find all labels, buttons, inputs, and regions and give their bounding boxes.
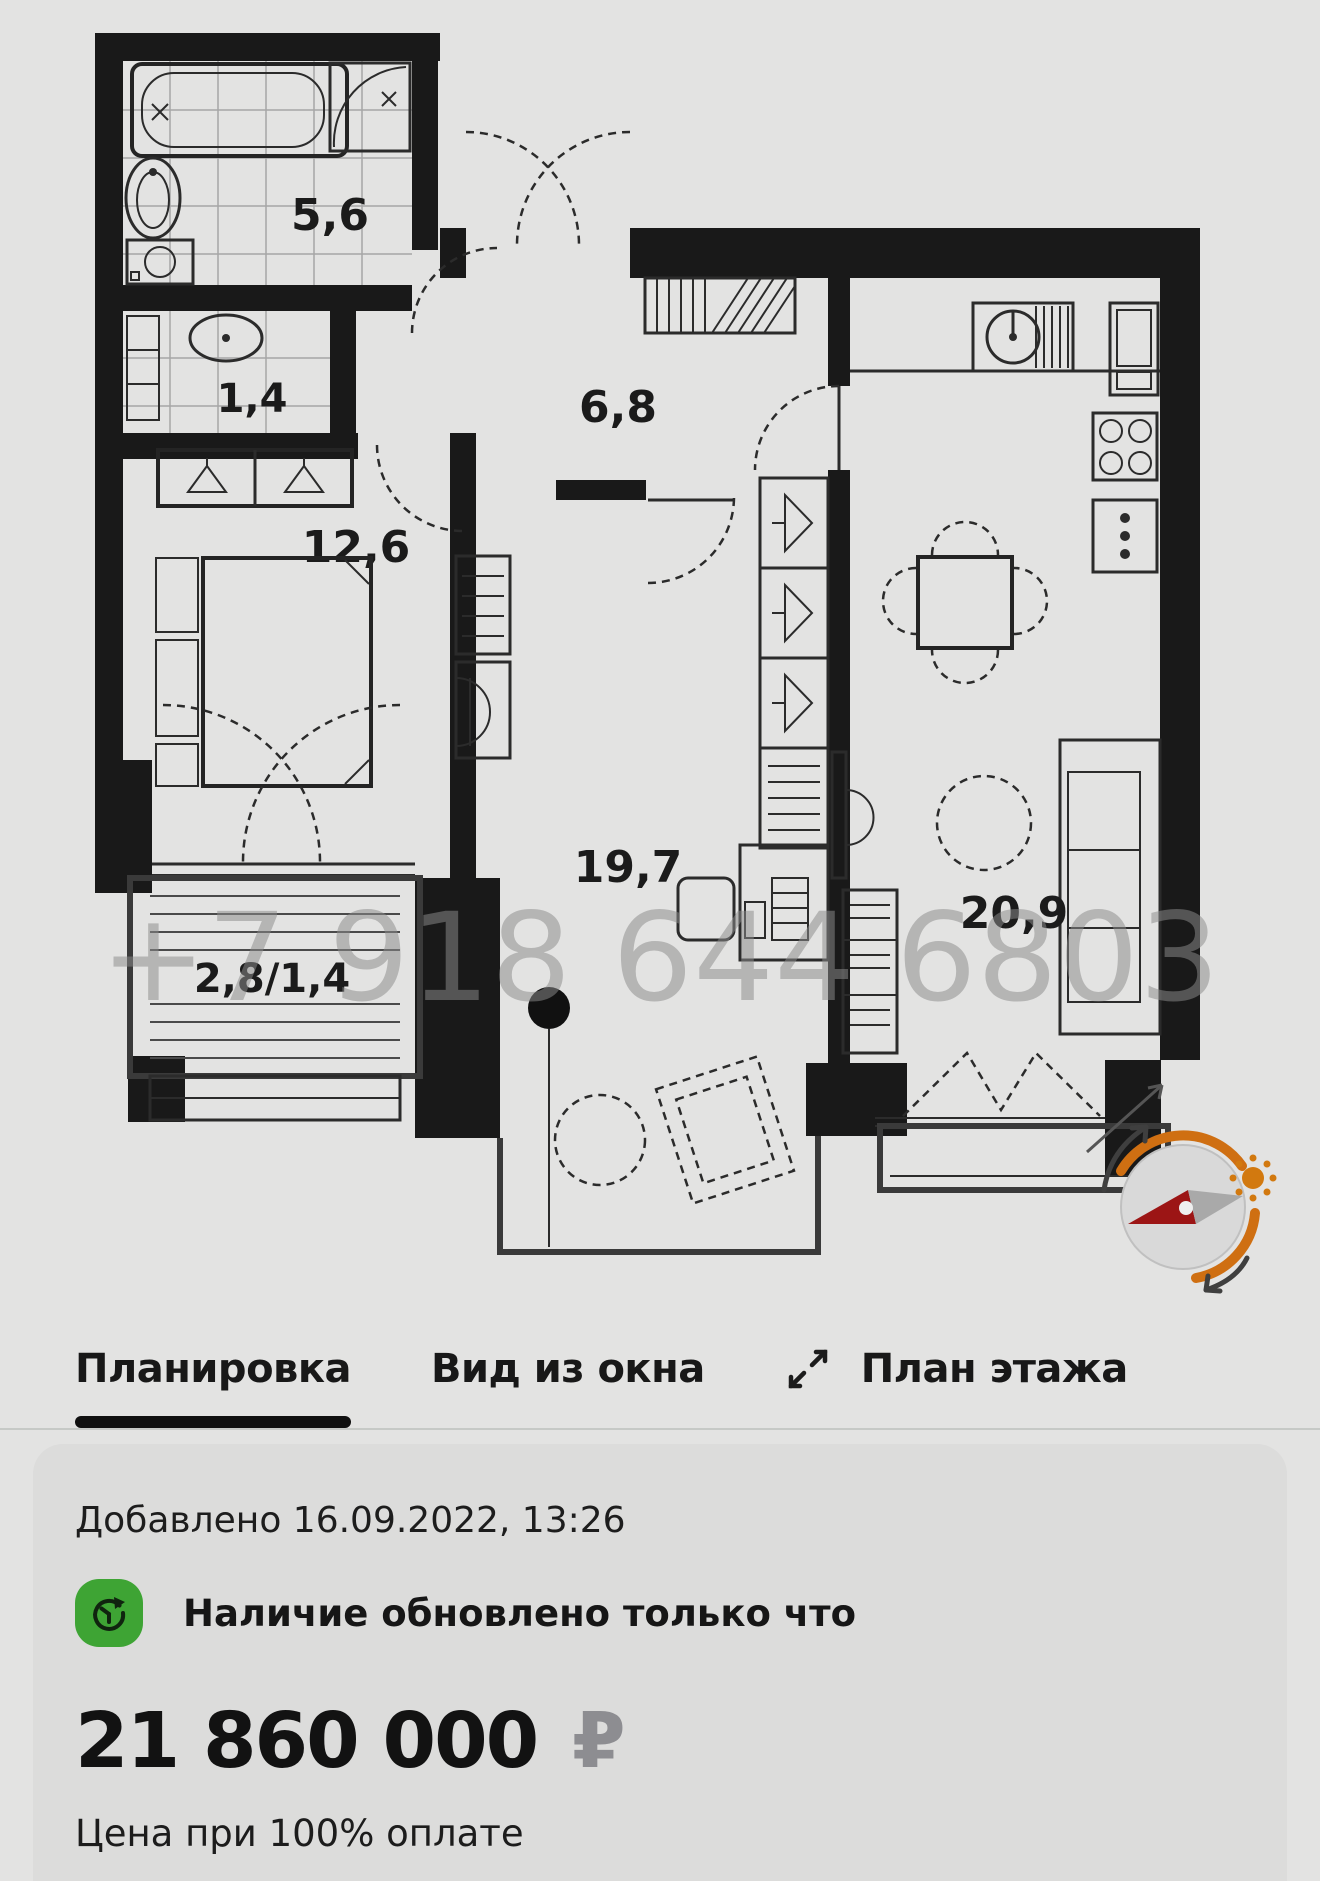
dining-table — [883, 522, 1047, 683]
closet-column — [760, 478, 828, 848]
kitchen-counter — [850, 303, 1160, 371]
bed — [156, 558, 371, 786]
bathroom-tiles — [123, 61, 412, 285]
tab-planirovka-label: Планировка — [75, 1346, 351, 1392]
hallway: 6,8 — [412, 132, 839, 470]
room-door-arc — [648, 497, 734, 583]
toilet-cabinet — [127, 316, 159, 420]
coffee-table — [937, 776, 1031, 870]
media-tabbar: Планировка Вид из окна План этажа — [0, 1310, 1320, 1430]
toilet-room: 1,4 — [123, 311, 330, 433]
currency-symbol: ₽ — [572, 1697, 624, 1786]
availability-badge — [75, 1579, 143, 1647]
kitchen-cabinet — [1093, 500, 1157, 572]
washing-machine — [127, 240, 193, 284]
price-row: 21 860 000 ₽ — [75, 1697, 1245, 1786]
tab-vid-iz-okna[interactable]: Вид из окна — [431, 1310, 705, 1428]
room-label-toilet: 1,4 — [217, 376, 288, 422]
shaft — [645, 278, 795, 333]
availability-row: Наличие обновлено только что — [75, 1579, 1245, 1647]
added-date: Добавлено 16.09.2022, 13:26 — [75, 1500, 1245, 1541]
floor-plan-viewer[interactable]: 5,6 1,4 6,8 — [0, 0, 1320, 1310]
room-label-bedroom: 12,6 — [302, 522, 411, 573]
entrance-door-arc — [466, 132, 579, 245]
tab-plan-etazha-label: План этажа — [861, 1346, 1128, 1392]
watermark-phone: +7 918 644 6803 — [100, 887, 1220, 1029]
room-label-hallway: 6,8 — [579, 382, 657, 433]
room-label-bathroom: 5,6 — [291, 190, 369, 241]
bay-window — [500, 1057, 818, 1252]
floor-plan-image: 5,6 1,4 6,8 — [0, 0, 1320, 1310]
armchair — [555, 1095, 645, 1185]
fridge — [1110, 303, 1158, 395]
toilet-sink — [190, 315, 262, 361]
price-value: 21 860 000 — [75, 1697, 537, 1786]
bathroom: 5,6 — [123, 61, 412, 285]
expand-arrows-icon — [785, 1346, 831, 1392]
kitchen-door-arc — [755, 386, 839, 470]
living-french-window — [875, 1053, 1105, 1126]
listing-info-card: Добавлено 16.09.2022, 13:26 Наличие обно… — [33, 1444, 1287, 1881]
expand-button[interactable] — [785, 1346, 831, 1392]
tab-plan-etazha[interactable]: План этажа — [861, 1310, 1128, 1428]
price-note: Цена при 100% оплате — [75, 1812, 1245, 1855]
living-room-19: 19,7 — [456, 478, 828, 1252]
refresh-clock-icon — [88, 1592, 130, 1634]
bedroom: 12,6 — [152, 445, 463, 875]
tab-planirovka[interactable]: Планировка — [75, 1310, 351, 1428]
kitchen-living: 20,9 — [832, 303, 1168, 1190]
availability-text: Наличие обновлено только что — [183, 1592, 856, 1635]
tab-vid-iz-okna-label: Вид из окна — [431, 1346, 705, 1392]
bathroom-sink — [126, 158, 180, 238]
room-label-room19: 19,7 — [574, 842, 683, 893]
stove — [1093, 413, 1157, 480]
tilted-table — [656, 1057, 794, 1204]
shower — [330, 63, 410, 151]
french-window — [152, 705, 415, 875]
bathroom-door-arc — [412, 248, 497, 333]
